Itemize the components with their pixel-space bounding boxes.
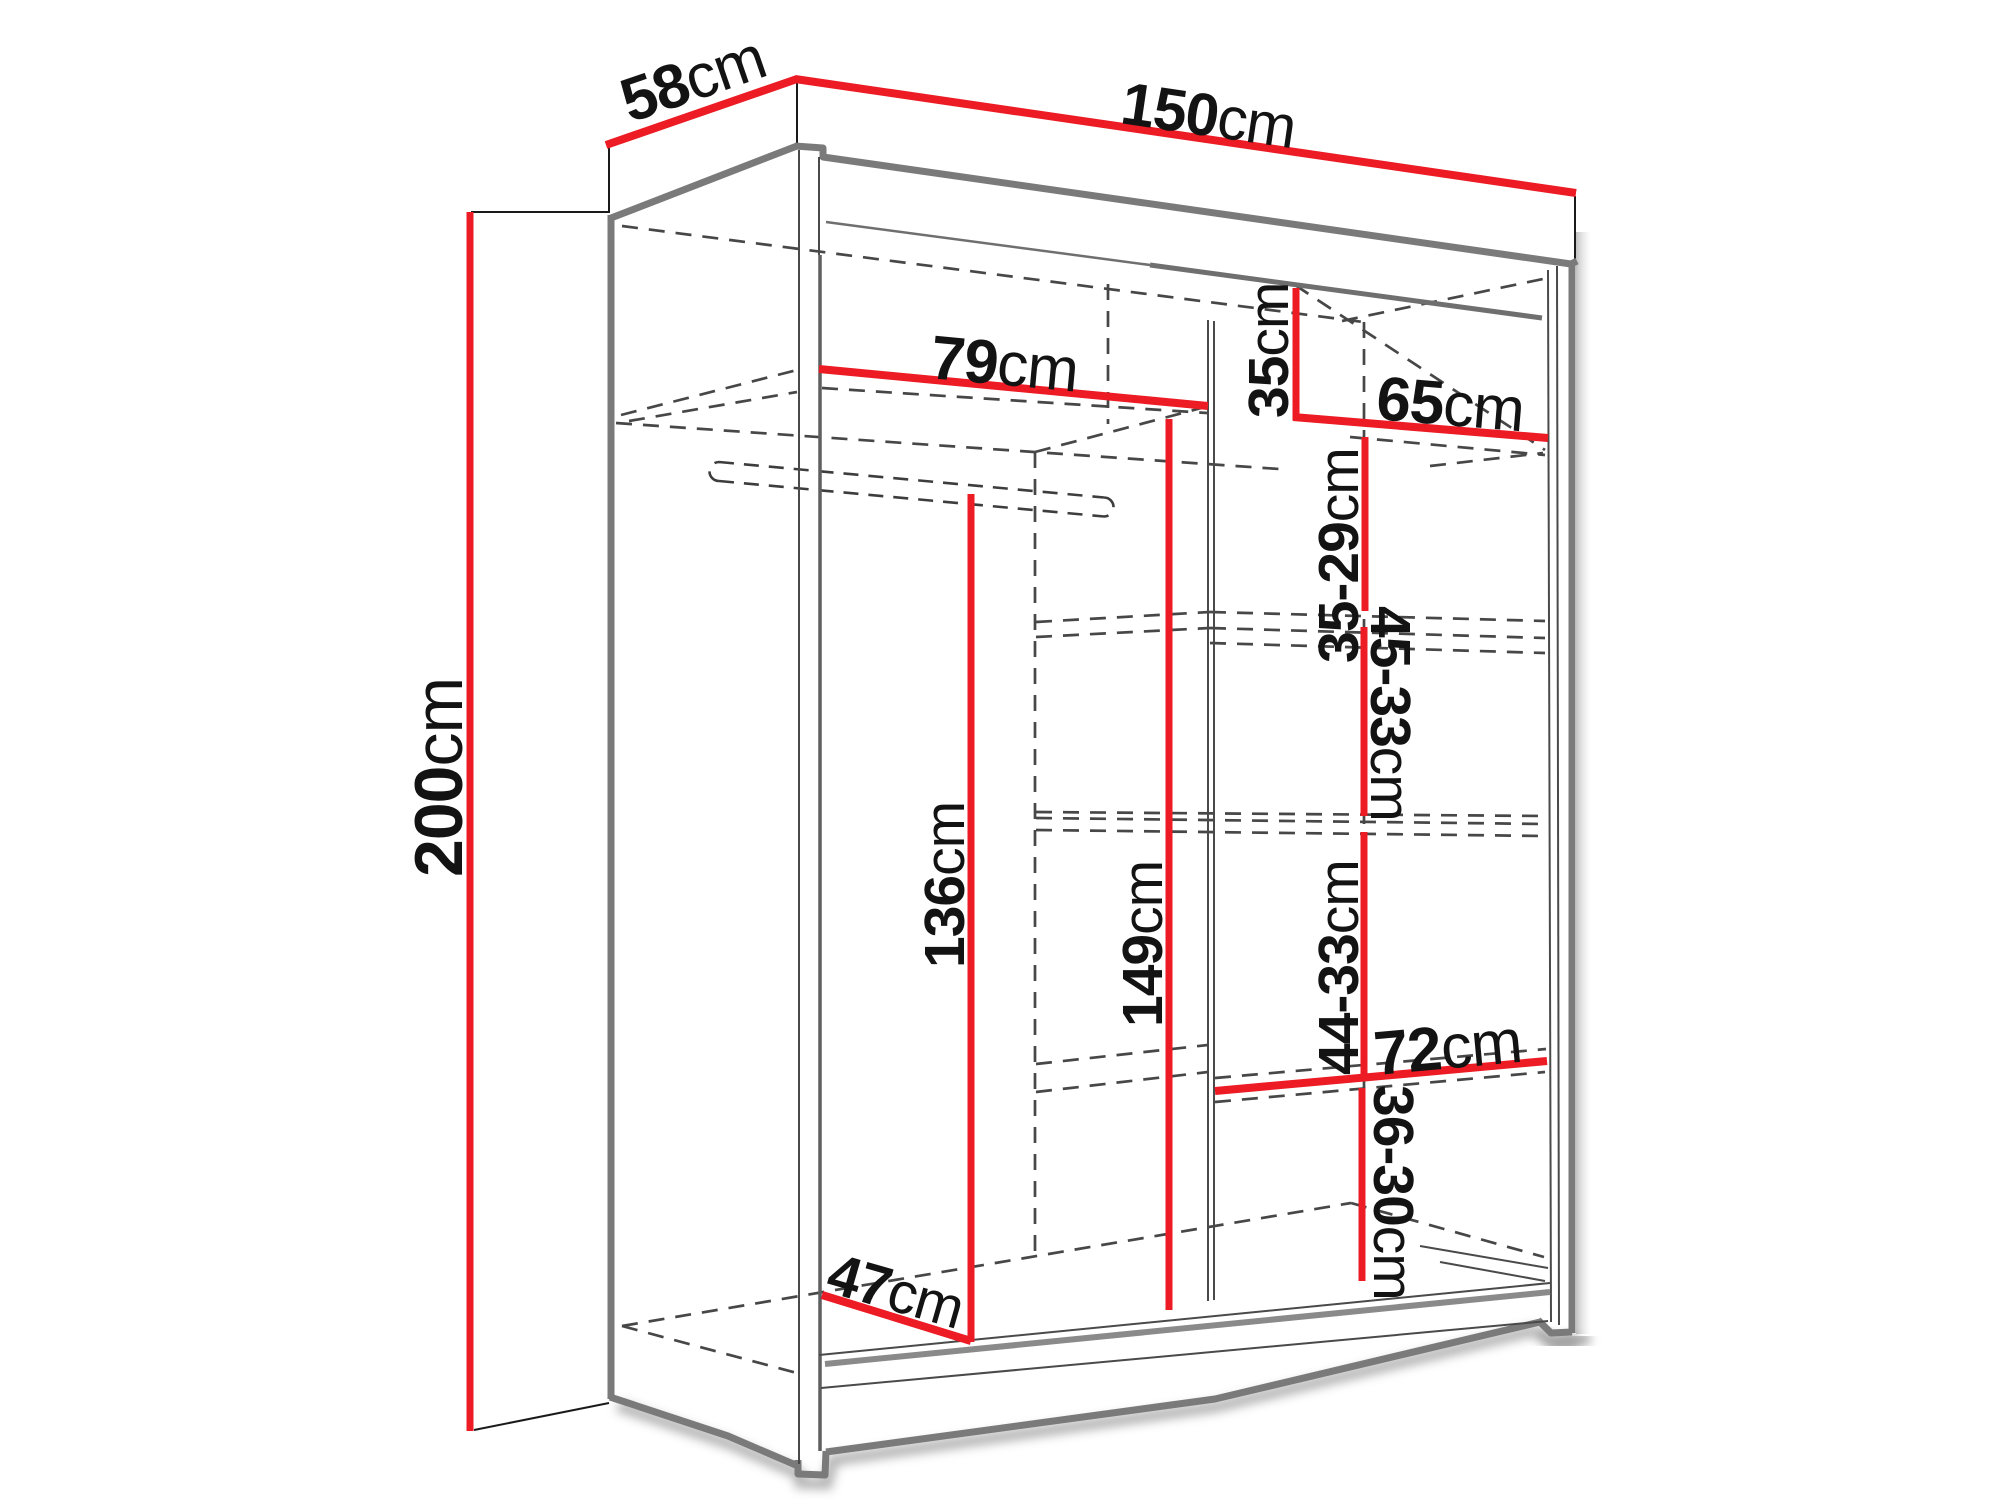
- svg-text:200cm: 200cm: [401, 678, 477, 877]
- svg-text:45-33cm: 45-33cm: [1358, 606, 1422, 821]
- svg-text:149cm: 149cm: [1111, 861, 1175, 1027]
- svg-text:72cm: 72cm: [1371, 1007, 1524, 1089]
- svg-text:79cm: 79cm: [928, 323, 1081, 405]
- svg-text:44-33cm: 44-33cm: [1307, 860, 1371, 1075]
- svg-text:136cm: 136cm: [913, 802, 977, 968]
- svg-text:35cm: 35cm: [1237, 283, 1301, 418]
- svg-text:65cm: 65cm: [1374, 364, 1527, 445]
- svg-text:36-30cm: 36-30cm: [1361, 1085, 1425, 1300]
